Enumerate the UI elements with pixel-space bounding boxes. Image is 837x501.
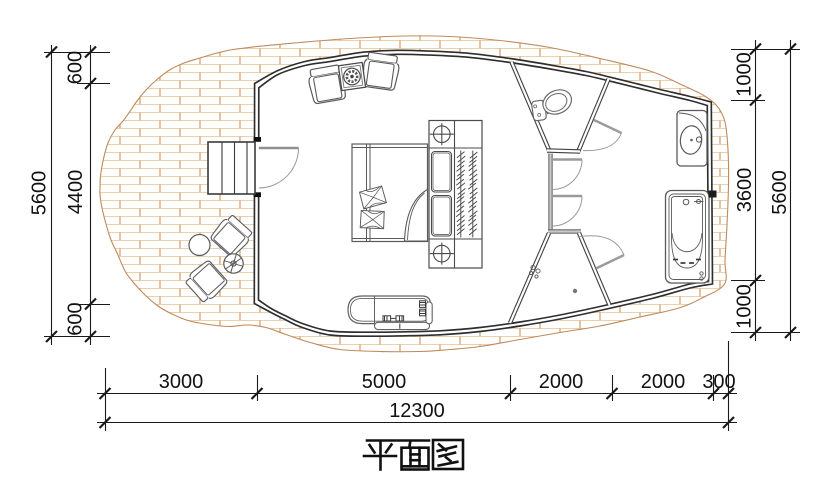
svg-text:300: 300 [702,371,735,393]
svg-text:5600: 5600 [29,171,51,216]
svg-text:600: 600 [65,51,87,84]
svg-text:3600: 3600 [734,168,756,213]
svg-text:12300: 12300 [389,400,445,422]
svg-text:1000: 1000 [734,284,756,329]
svg-text:5000: 5000 [362,371,407,393]
svg-text:5600: 5600 [769,170,791,215]
svg-text:1000: 1000 [734,52,756,97]
svg-text:3000: 3000 [159,371,204,393]
svg-text:4400: 4400 [65,170,87,215]
svg-text:2000: 2000 [641,371,686,393]
svg-text:600: 600 [65,302,87,335]
svg-text:2000: 2000 [539,371,584,393]
